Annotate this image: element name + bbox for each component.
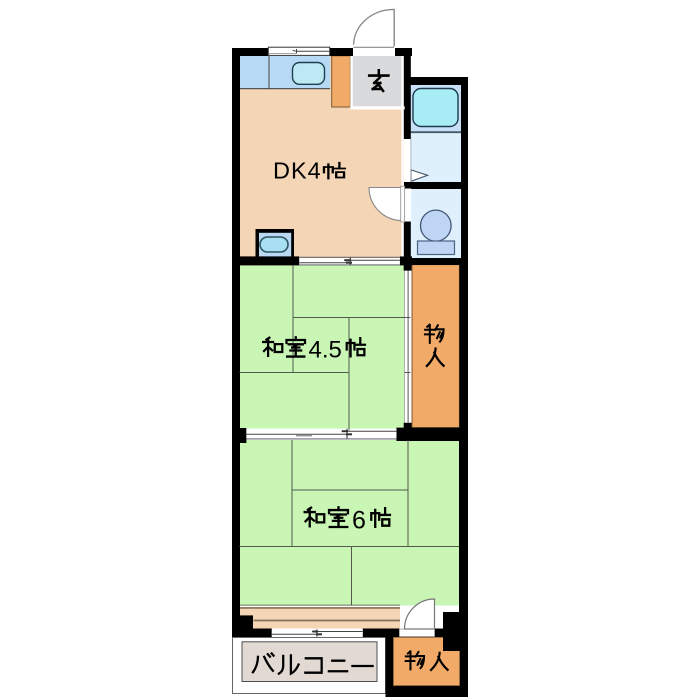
svg-text:4.5: 4.5 xyxy=(309,337,342,364)
svg-text:6: 6 xyxy=(352,507,366,535)
svg-text:DK4: DK4 xyxy=(273,158,322,184)
